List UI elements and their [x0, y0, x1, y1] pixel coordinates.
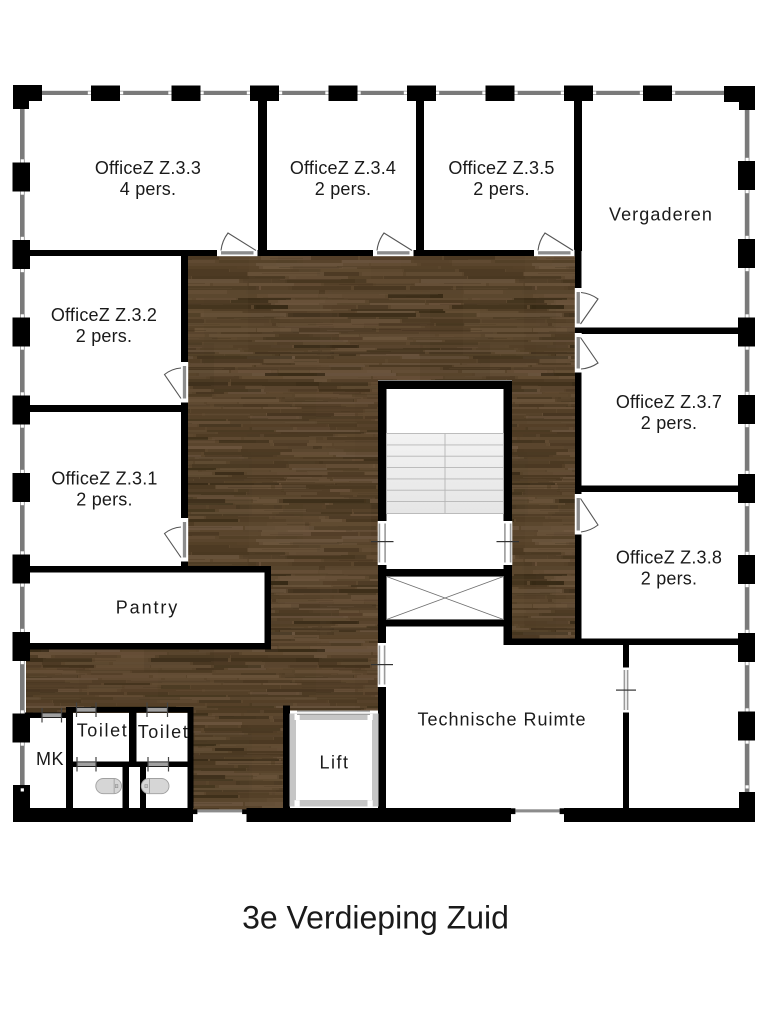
- svg-text:4 pers.: 4 pers.: [120, 179, 176, 199]
- svg-text:Lift: Lift: [319, 753, 349, 773]
- svg-text:OfficeZ Z.3.7: OfficeZ Z.3.7: [616, 392, 722, 412]
- svg-text:2 pers.: 2 pers.: [641, 413, 697, 433]
- svg-text:2 pers.: 2 pers.: [76, 326, 132, 346]
- svg-text:OfficeZ Z.3.1: OfficeZ Z.3.1: [51, 469, 157, 489]
- svg-text:Toilet: Toilet: [138, 722, 190, 742]
- svg-text:2 pers.: 2 pers.: [315, 179, 371, 199]
- svg-text:Vergaderen: Vergaderen: [609, 205, 713, 225]
- svg-text:2 pers.: 2 pers.: [641, 569, 697, 589]
- svg-text:OfficeZ Z.3.2: OfficeZ Z.3.2: [51, 305, 157, 325]
- svg-text:2 pers.: 2 pers.: [76, 490, 132, 510]
- svg-text:OfficeZ Z.3.5: OfficeZ Z.3.5: [448, 158, 554, 178]
- svg-text:MK: MK: [36, 749, 64, 769]
- svg-text:Toilet: Toilet: [77, 721, 129, 741]
- svg-text:OfficeZ Z.3.8: OfficeZ Z.3.8: [616, 548, 722, 568]
- svg-text:Pantry: Pantry: [116, 598, 179, 618]
- svg-text:3e Verdieping Zuid: 3e Verdieping Zuid: [242, 900, 509, 936]
- svg-text:OfficeZ Z.3.4: OfficeZ Z.3.4: [290, 158, 396, 178]
- svg-text:Technische Ruimte: Technische Ruimte: [417, 710, 586, 730]
- svg-text:2 pers.: 2 pers.: [473, 179, 529, 199]
- svg-text:OfficeZ Z.3.3: OfficeZ Z.3.3: [95, 158, 201, 178]
